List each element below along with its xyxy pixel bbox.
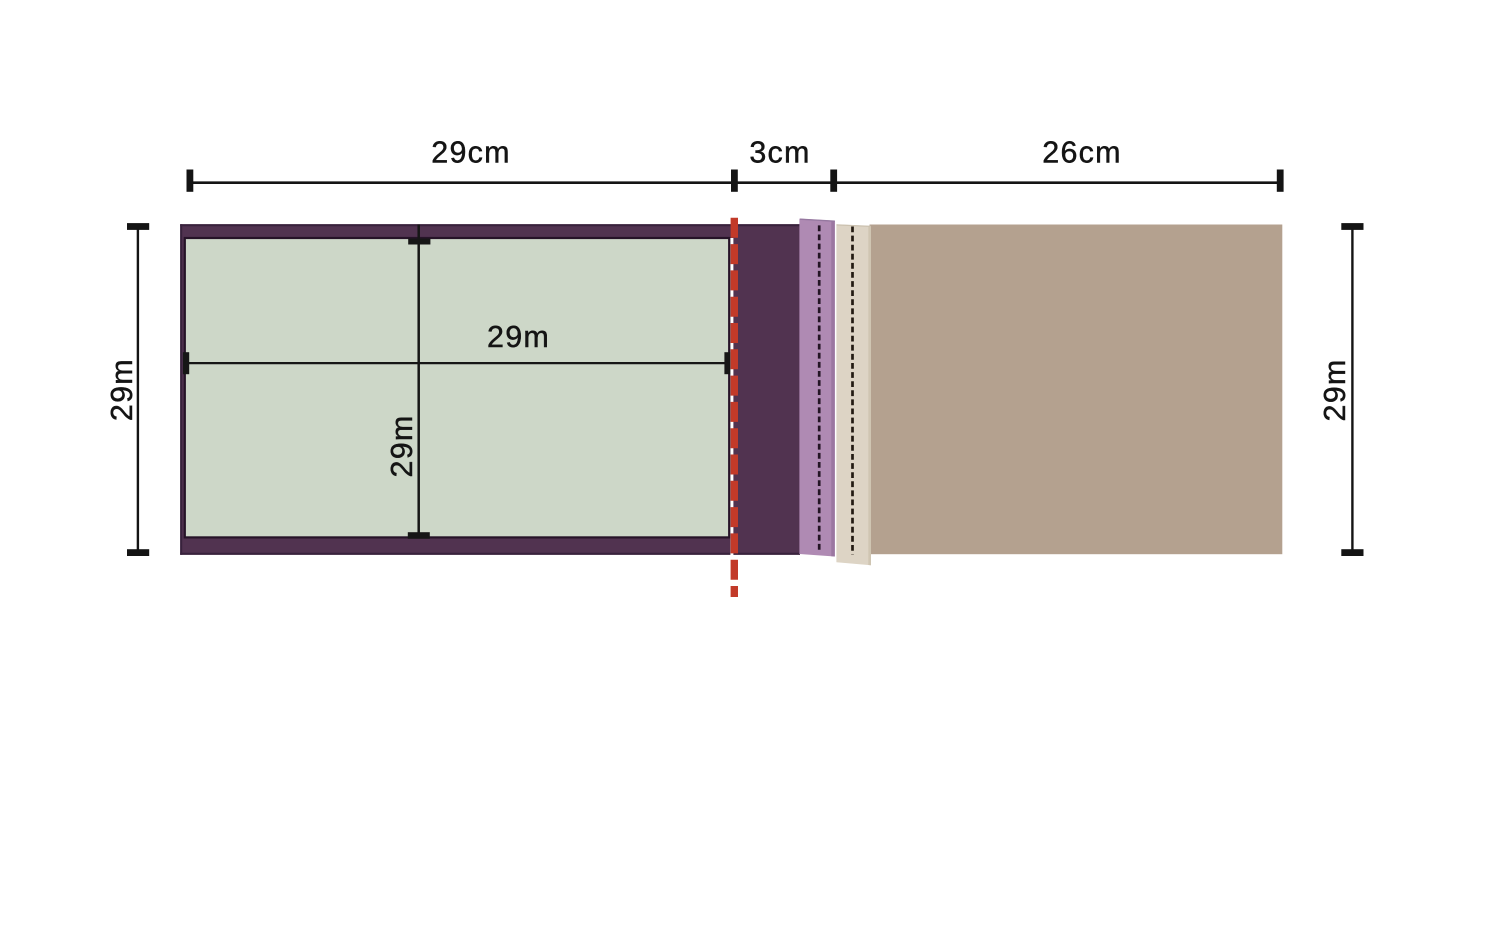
svg-text:3cm: 3cm bbox=[749, 136, 810, 170]
svg-text:26cm: 26cm bbox=[1042, 136, 1121, 170]
svg-text:29cm: 29cm bbox=[431, 136, 510, 170]
svg-text:29m: 29m bbox=[487, 320, 550, 354]
svg-text:29m: 29m bbox=[385, 415, 419, 478]
svg-text:29m: 29m bbox=[1318, 359, 1352, 422]
svg-text:29m: 29m bbox=[105, 358, 139, 421]
